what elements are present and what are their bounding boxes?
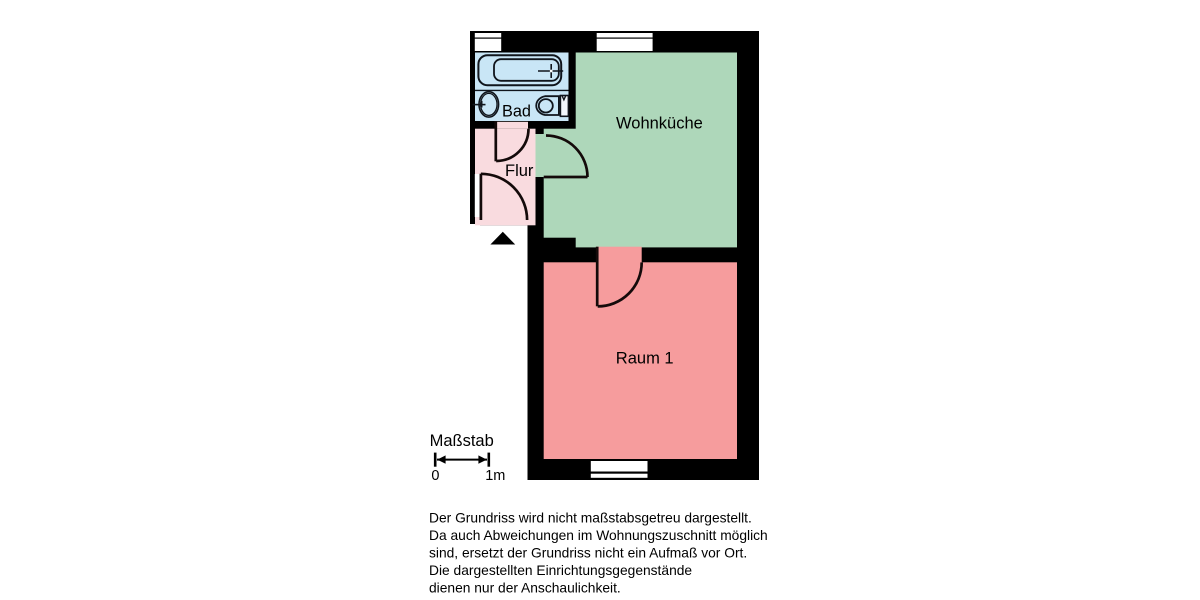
svg-text:Die dargestellten Einrichtungs: Die dargestellten Einrichtungsgegenständ… (429, 563, 692, 578)
svg-text:Da auch Abweichungen im Wohnun: Da auch Abweichungen im Wohnungszuschnit… (429, 528, 768, 543)
svg-text:Flur: Flur (505, 162, 534, 180)
svg-text:dienen nur der Anschaulichkeit: dienen nur der Anschaulichkeit. (429, 581, 621, 596)
svg-text:Bad: Bad (502, 103, 531, 121)
svg-text:1m: 1m (485, 468, 505, 484)
svg-text:Raum 1: Raum 1 (616, 350, 674, 368)
svg-text:sind, ersetzt der Grundriss ni: sind, ersetzt der Grundriss nicht ein Au… (429, 546, 747, 561)
svg-text:Maßstab: Maßstab (430, 432, 494, 450)
svg-text:0: 0 (431, 468, 439, 484)
svg-text:Wohnküche: Wohnküche (616, 115, 703, 133)
svg-text:Der Grundriss wird nicht maßst: Der Grundriss wird nicht maßstabsgetreu … (429, 511, 752, 526)
